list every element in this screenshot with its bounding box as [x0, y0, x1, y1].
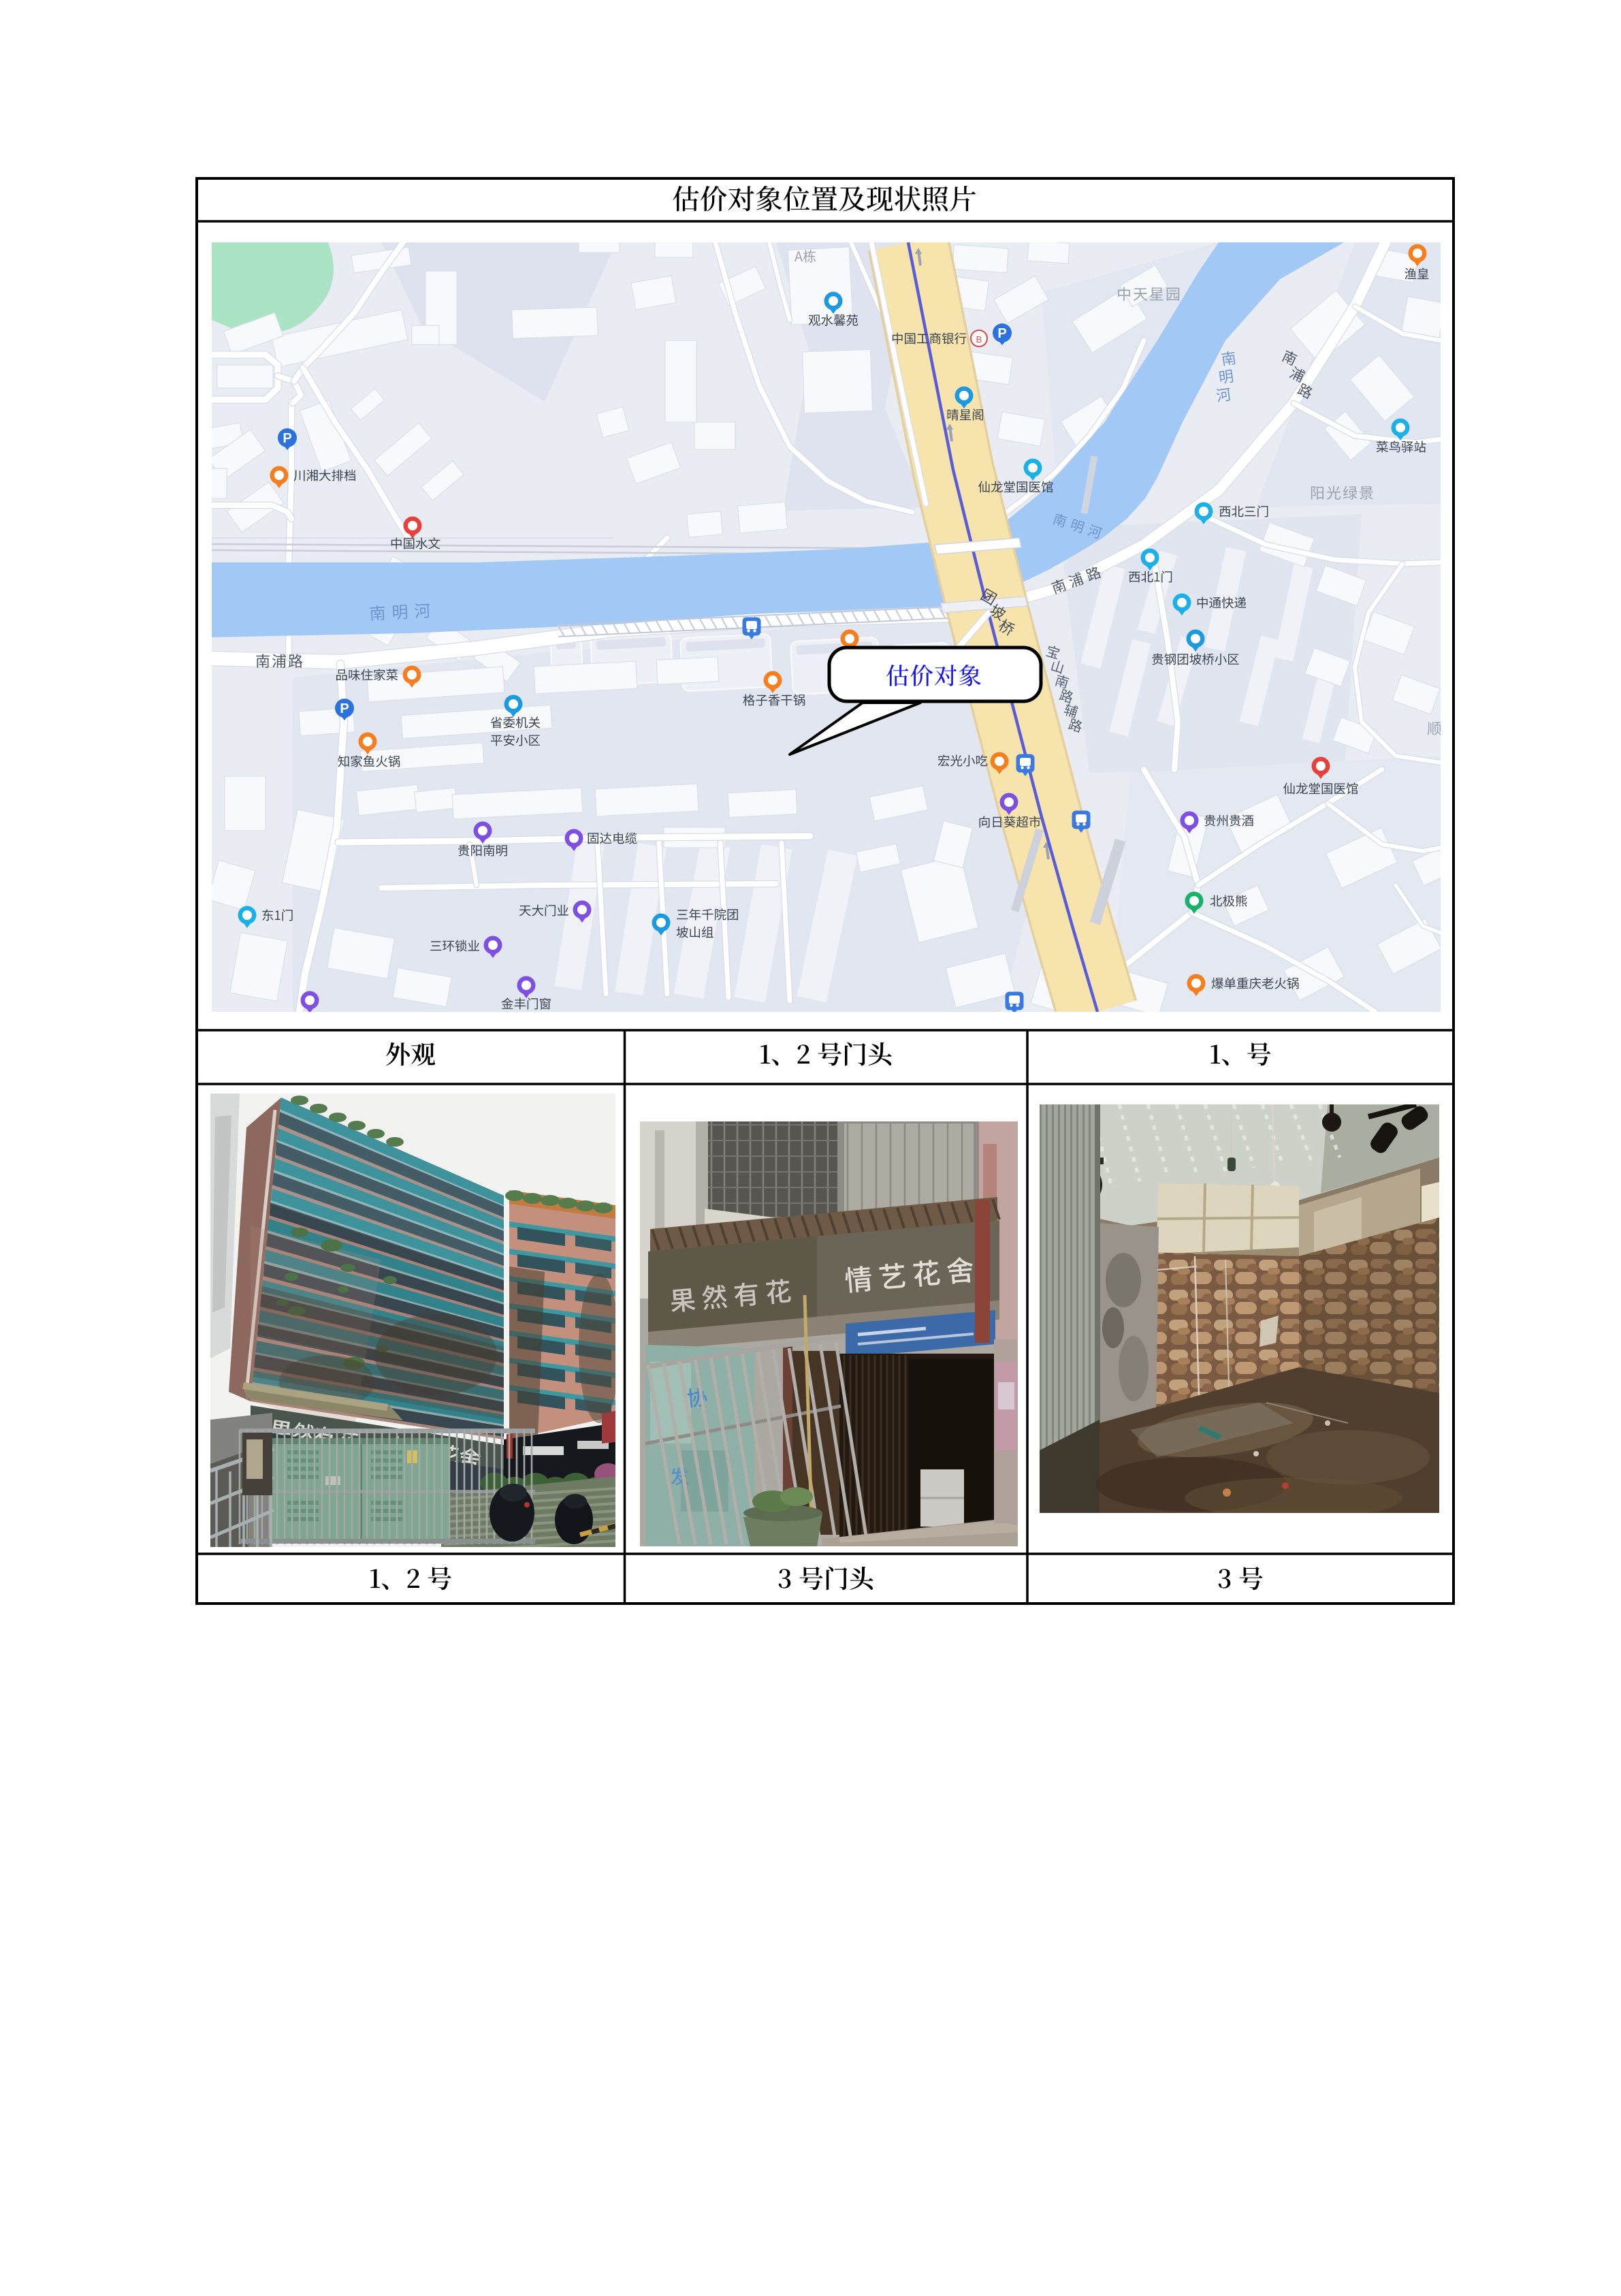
svg-text:P: P	[997, 326, 1006, 341]
svg-text:P: P	[283, 431, 291, 446]
svg-text:B: B	[976, 334, 982, 345]
svg-text:P: P	[340, 701, 349, 716]
